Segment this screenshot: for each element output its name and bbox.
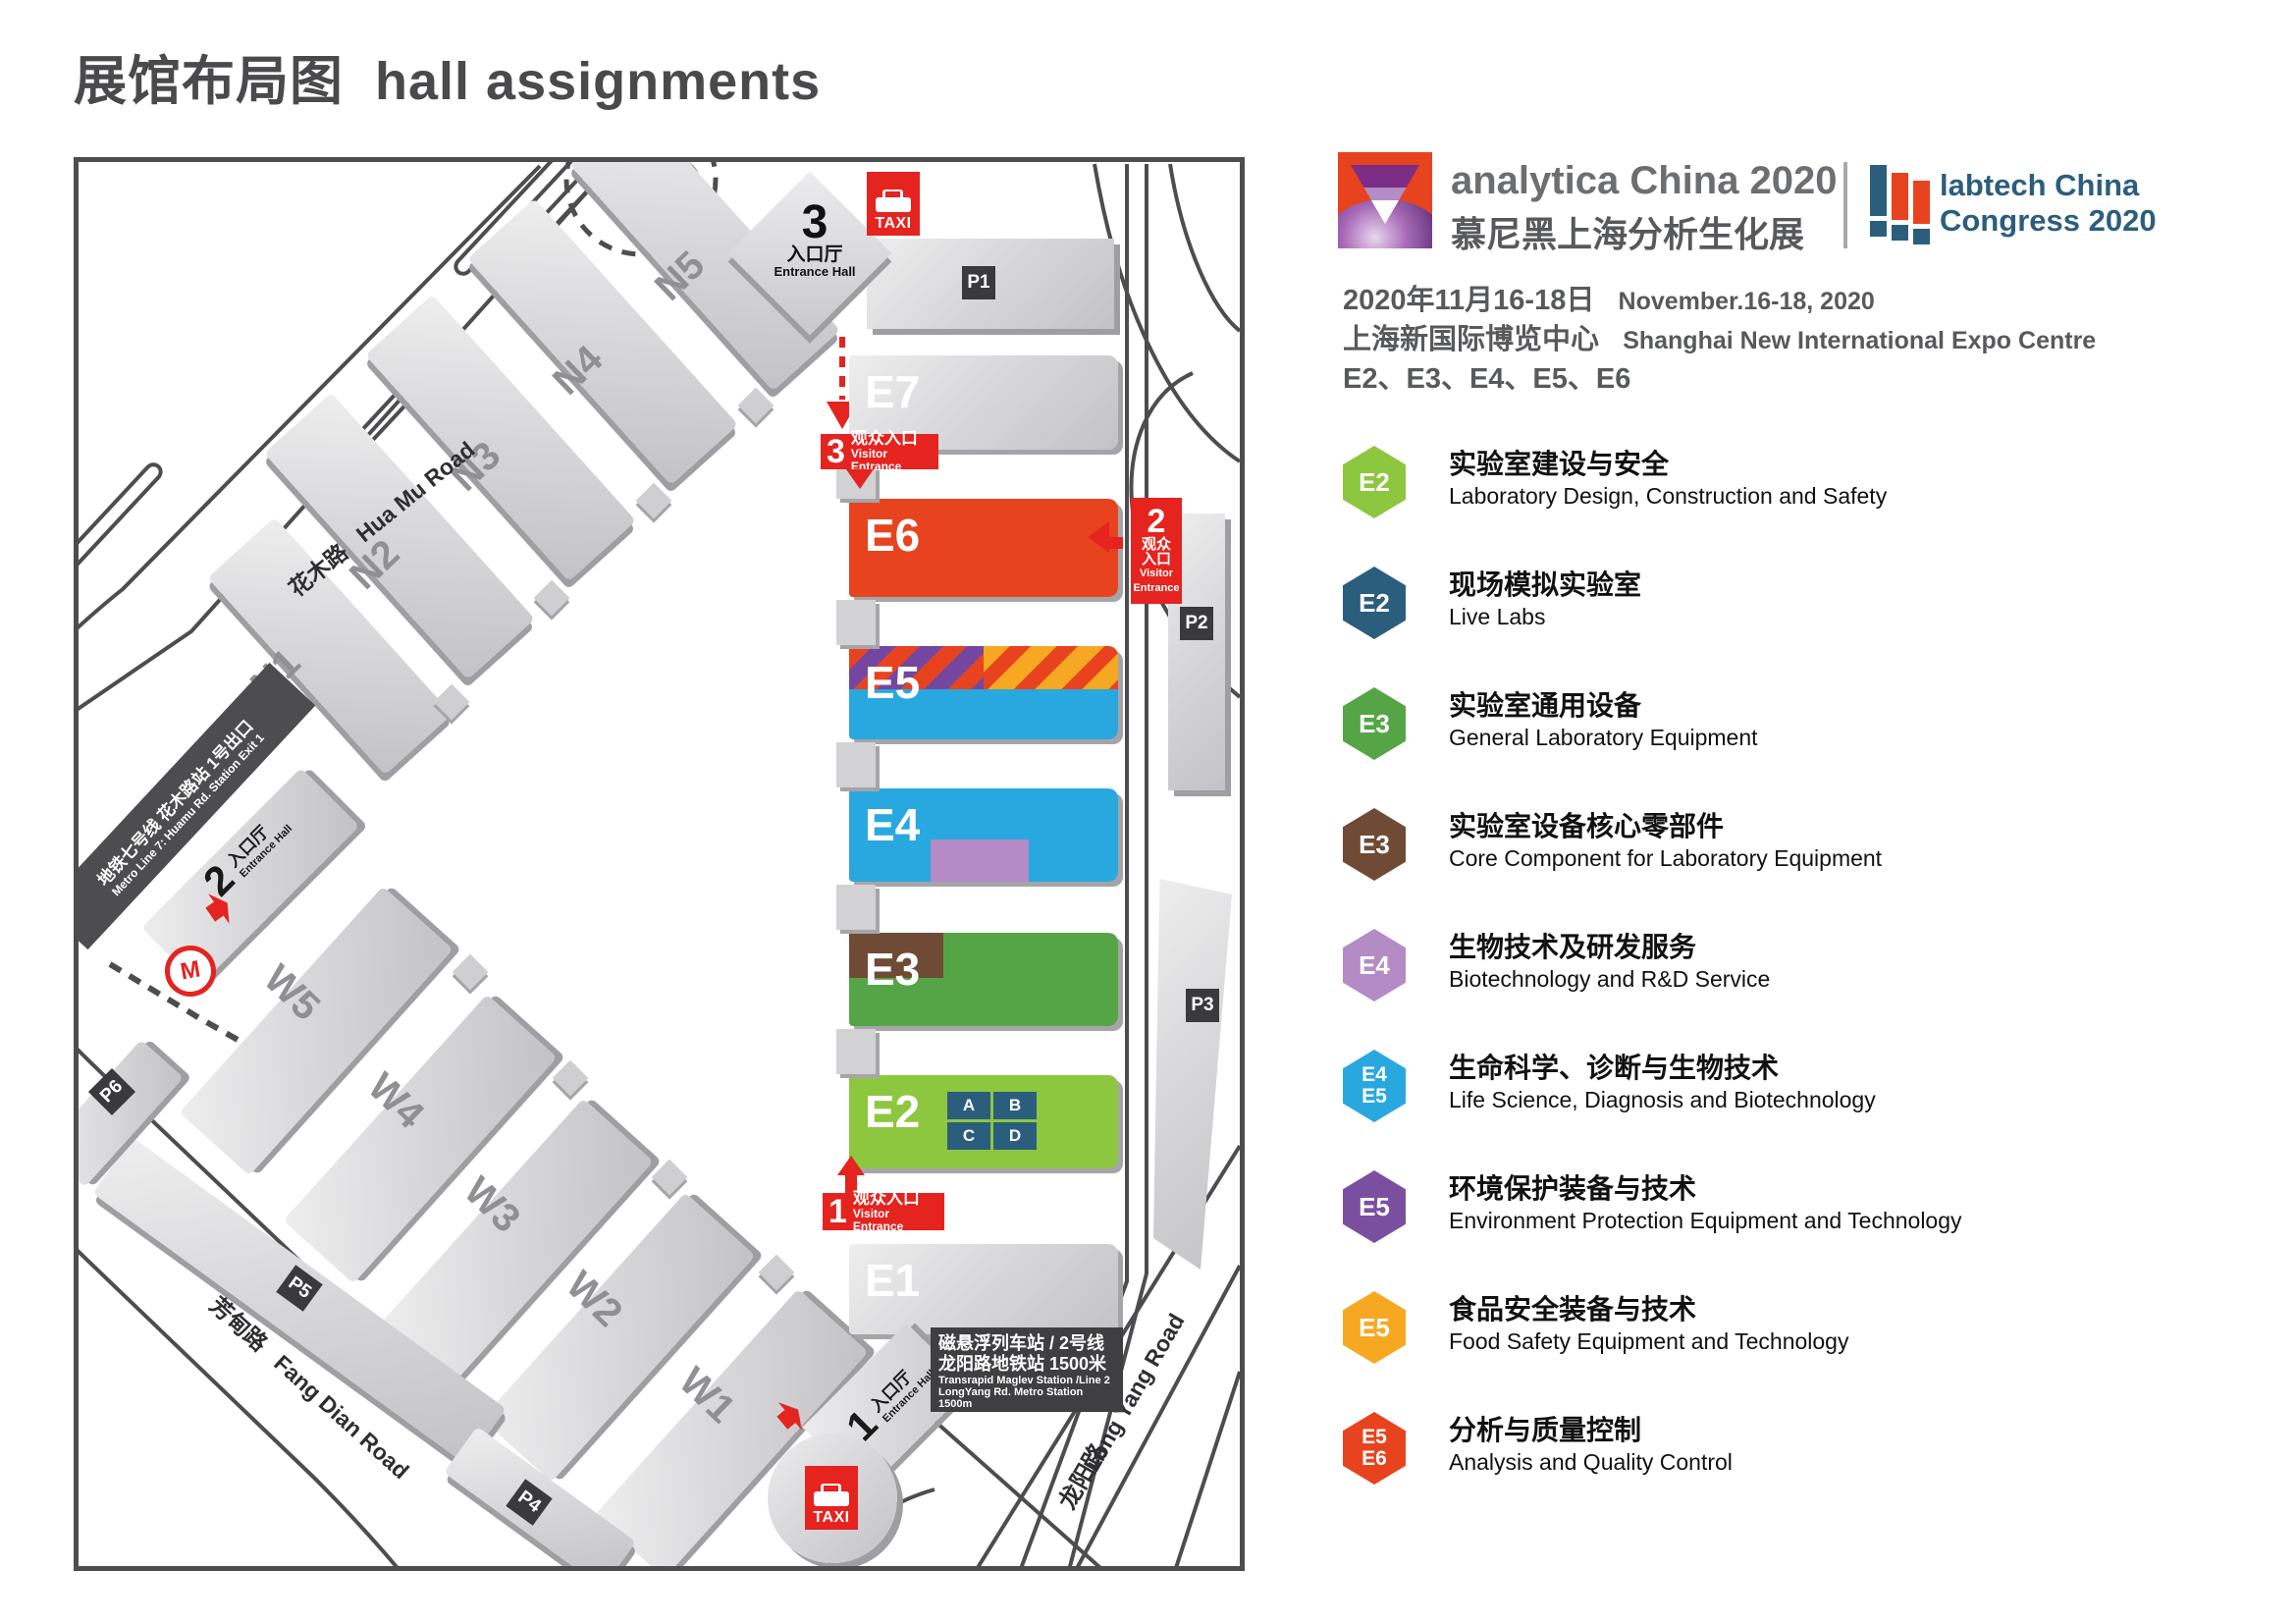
visitor-entrance-2-zh1: 观众	[1142, 537, 1171, 552]
hall-e5-stripes-right	[984, 646, 1118, 689]
page-title-en: hall assignments	[375, 52, 821, 111]
legend-hex-line1: E4	[1362, 1064, 1387, 1086]
entrance-hall-3: 3 入口厅 Entrance Hall	[761, 201, 869, 279]
page-title: 展馆布局图 hall assignments	[74, 37, 821, 115]
hall-e2-label: E2	[865, 1085, 920, 1138]
maglev-zh1: 磁悬浮列车站 / 2号线	[938, 1333, 1115, 1354]
hall-e4: E4	[849, 788, 1118, 882]
hall-e5-label: E5	[865, 656, 920, 709]
maglev-info-box: 磁悬浮列车站 / 2号线 龙阳路地铁站 1500米 Transrapid Mag…	[931, 1327, 1123, 1412]
legend-zh: 生命科学、诊断与生物技术	[1449, 1052, 1876, 1085]
taxi-label: TAXI	[875, 215, 911, 233]
visitor-entrance-3-number: 3	[827, 437, 845, 466]
parking-p1-badge: P1	[962, 266, 995, 299]
legend-en: Core Component for Laboratory Equipment	[1449, 843, 1882, 873]
entrance-hall-3-number: 3	[761, 201, 869, 244]
legend-en: Biotechnology and R&D Service	[1449, 964, 1770, 994]
legend-item-8: E5 食品安全装备与技术 Food Safety Equipment and T…	[1343, 1291, 1848, 1364]
parking-p3-badge: P3	[1186, 989, 1219, 1022]
legend-en: Live Labs	[1449, 602, 1641, 631]
event-venue-zh: 上海新国际博览中心	[1343, 324, 1599, 355]
legend-en: Life Science, Diagnosis and Biotechnolog…	[1449, 1085, 1876, 1114]
taxi-icon	[814, 1491, 849, 1506]
legend-zh: 食品安全装备与技术	[1449, 1293, 1848, 1326]
analytica-wordmark: analytica China 2020	[1451, 159, 1838, 203]
labtech-logo	[1870, 165, 1930, 244]
legend-hex-e5-orange: E5	[1343, 1291, 1406, 1364]
labtech-wordmark-1: labtech China	[1940, 169, 2139, 202]
page-title-zh: 展馆布局图	[74, 52, 344, 111]
visitor-entrance-1-badge: 1 观众入口 Visitor Entrance	[823, 1193, 944, 1230]
legend-item-2: E2 现场模拟实验室 Live Labs	[1343, 567, 1641, 639]
hall-e2: E2 A B C D	[849, 1075, 1118, 1168]
hall-e2-section-b: B	[993, 1092, 1037, 1119]
venue-map: N1 N2 N3 N4 N5 W5 W4 W3 W2 W1 E7 E6	[74, 157, 1245, 1571]
hall-e2-section-c: C	[947, 1122, 990, 1150]
hall-e5: E5	[849, 646, 1118, 739]
hall-e7-label: E7	[865, 365, 920, 418]
parking-p2-badge: P2	[1180, 607, 1213, 640]
legend-en: Food Safety Equipment and Technology	[1449, 1326, 1848, 1356]
labtech-wordmark-2: Congress 2020	[1940, 204, 2157, 238]
visitor-entrance-2-en1: Visitor	[1140, 567, 1173, 581]
hall-e3-label: E3	[865, 943, 920, 996]
hall-e4-purple-zone	[931, 839, 1029, 882]
hall-e3: E3	[849, 933, 1118, 1026]
visitor-entrance-2-zh2: 入口	[1142, 552, 1171, 567]
hall-e1-label: E1	[865, 1254, 920, 1307]
legend-zh: 分析与质量控制	[1449, 1414, 1733, 1447]
legend-hex-e2-green: E2	[1343, 446, 1406, 518]
taxi-icon	[876, 197, 911, 212]
taxi-stand-north: TAXI	[867, 172, 920, 236]
legend-hex-e3-green: E3	[1343, 687, 1406, 760]
event-venue-en: Shanghai New International Expo Centre	[1623, 327, 2096, 354]
legend-hex-e5-purple: E5	[1343, 1170, 1406, 1243]
maglev-zh2: 龙阳路地铁站 1500米	[938, 1354, 1115, 1375]
entrance-hall-3-en: Entrance Hall	[761, 265, 869, 279]
legend-en: Analysis and Quality Control	[1449, 1447, 1733, 1477]
legend-en: Environment Protection Equipment and Tec…	[1449, 1206, 1962, 1235]
hall-e4-label: E4	[865, 798, 920, 851]
event-venue: 上海新国际博览中心 Shanghai New International Exp…	[1343, 316, 2096, 357]
legend-hex-e4-e5-blue: E4 E5	[1343, 1050, 1406, 1122]
event-halls: E2、E3、E4、E5、E6	[1343, 355, 1630, 397]
legend-hex-e4-purple: E4	[1343, 929, 1406, 1001]
visitor-entrance-3-zh: 观众入口	[851, 430, 933, 448]
connector	[836, 742, 876, 787]
analytica-wordmark-zh: 慕尼黑上海分析生化展	[1451, 206, 1804, 257]
legend-zh: 实验室设备核心零部件	[1449, 810, 1882, 843]
legend-item-4: E3 实验室设备核心零部件 Core Component for Laborat…	[1343, 808, 1882, 881]
legend-hex-e5-e6-red: E5 E6	[1343, 1412, 1406, 1485]
legend-item-3: E3 实验室通用设备 General Laboratory Equipment	[1343, 687, 1758, 760]
legend-zh: 生物技术及研发服务	[1449, 931, 1770, 964]
legend-en: General Laboratory Equipment	[1449, 723, 1758, 752]
legend-zh: 实验室通用设备	[1449, 689, 1758, 723]
visitor-entrance-1-number: 1	[828, 1197, 847, 1226]
analytica-logo	[1338, 152, 1432, 248]
maglev-en2: LongYang Rd. Metro Station 1500m	[938, 1386, 1115, 1410]
logo-divider	[1843, 162, 1847, 248]
visitor-entrance-3-arrow	[846, 469, 874, 489]
connector	[836, 600, 876, 645]
legend-hex-e3-brown: E3	[1343, 808, 1406, 881]
legend-en: Laboratory Design, Construction and Safe…	[1449, 481, 1887, 511]
connector	[836, 1029, 876, 1074]
legend-zh: 实验室建设与安全	[1449, 448, 1887, 481]
legend-item-7: E5 环境保护装备与技术 Environment Protection Equi…	[1343, 1170, 1962, 1243]
legend-hex-line2: E5	[1362, 1086, 1387, 1108]
event-date-zh: 2020年11月16-18日	[1343, 285, 1594, 316]
hall-e2-section-a: A	[947, 1092, 990, 1119]
visitor-entrance-2-arrow	[1088, 521, 1109, 553]
visitor-entrance-1-en: Visitor Entrance	[853, 1208, 938, 1233]
page: 展馆布局图 hall assignments	[0, 0, 2296, 1624]
legend-zh: 现场模拟实验室	[1449, 568, 1641, 602]
legend-item-5: E4 生物技术及研发服务 Biotechnology and R&D Servi…	[1343, 929, 1770, 1001]
entrance-hall-3-zh: 入口厅	[761, 244, 869, 265]
taxi-stand-south: TAXI	[805, 1466, 858, 1530]
event-date: 2020年11月16-18日 November.16-18, 2020	[1343, 277, 1875, 318]
legend-item-9: E5 E6 分析与质量控制 Analysis and Quality Contr…	[1343, 1412, 1733, 1485]
hall-e1: E1	[849, 1244, 1118, 1334]
visitor-entrance-3-badge: 3 观众入口 Visitor Entrance	[821, 434, 938, 469]
hall-e6: E6	[849, 499, 1118, 597]
legend-hex-e2-navy: E2	[1343, 567, 1406, 639]
legend-zh: 环境保护装备与技术	[1449, 1172, 1962, 1206]
connector	[836, 885, 876, 930]
taxi-label: TAXI	[813, 1509, 849, 1527]
legend-hex-line2: E6	[1362, 1448, 1387, 1470]
maglev-en1: Transrapid Maglev Station /Line 2	[938, 1375, 1115, 1386]
visitor-entrance-2-number: 2	[1148, 506, 1166, 537]
visitor-entrance-2-badge: 2 观众 入口 Visitor Entrance	[1131, 498, 1182, 604]
hall-e2-section-d: D	[993, 1122, 1037, 1150]
visitor-entrance-1-arrow	[837, 1156, 865, 1175]
visitor-entrance-1-zh: 观众入口	[853, 1190, 938, 1208]
hall-e6-label: E6	[865, 509, 920, 562]
event-date-en: November.16-18, 2020	[1619, 288, 1875, 315]
legend-item-1: E2 实验室建设与安全 Laboratory Design, Construct…	[1343, 446, 1887, 518]
legend-hex-line1: E5	[1362, 1427, 1387, 1448]
legend-item-6: E4 E5 生命科学、诊断与生物技术 Life Science, Diagnos…	[1343, 1050, 1876, 1122]
visitor-entrance-2-en2: Entrance	[1133, 581, 1179, 596]
